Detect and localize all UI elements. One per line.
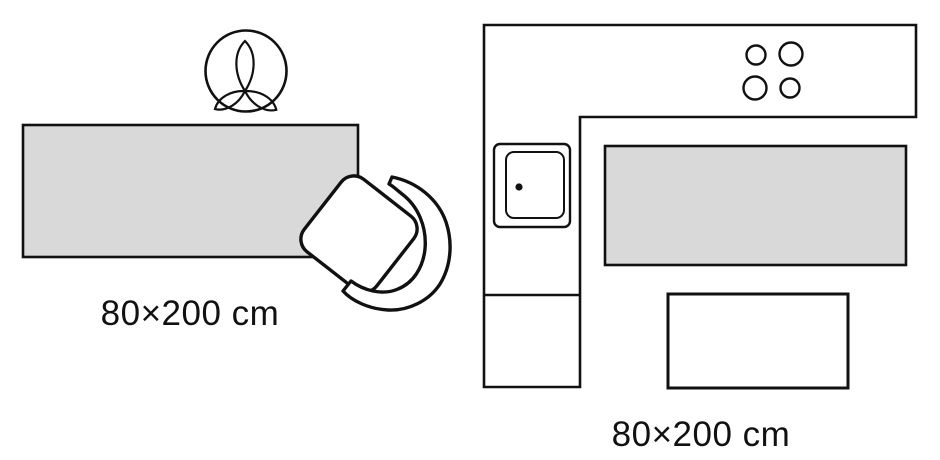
- rug-size-diagram: 80×200 cm 80×200 cm: [0, 0, 940, 460]
- table-outline: [668, 294, 848, 388]
- sink-drain-dot: [515, 183, 522, 190]
- scene-left: [23, 31, 450, 311]
- plant-icon: [206, 31, 287, 116]
- plant-leaf-top: [236, 41, 253, 91]
- diagram-artwork: [0, 0, 940, 460]
- sink-basin: [506, 152, 564, 218]
- left-rug-size-label: 80×200 cm: [60, 295, 320, 333]
- scene-right: [484, 25, 916, 388]
- right-rug-size-label: 80×200 cm: [571, 416, 831, 454]
- sink-icon: [494, 144, 570, 227]
- right-rug-swatch: [605, 146, 906, 265]
